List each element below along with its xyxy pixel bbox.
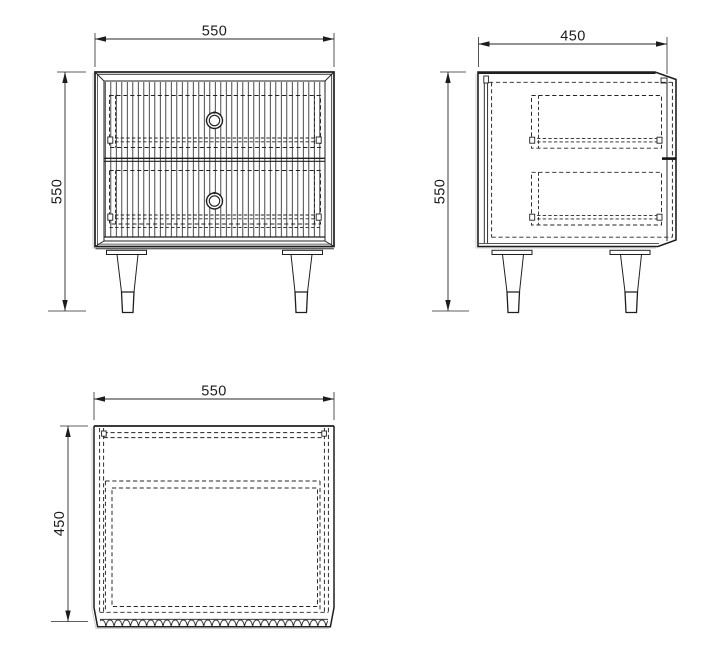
side-shadow-outline <box>476 74 656 249</box>
runner-end-left <box>108 137 113 143</box>
side-depth-label: 450 <box>560 29 585 45</box>
runner-end-right <box>657 137 662 143</box>
front-view: 550 550 <box>48 24 334 313</box>
runner-end-left <box>102 431 107 436</box>
top-depth-label: 450 <box>52 511 68 536</box>
front-width-label: 550 <box>202 24 227 40</box>
runner-end-left <box>530 137 535 143</box>
front-right-leg <box>283 250 323 312</box>
runner-end-right <box>322 431 327 436</box>
side-upper-drawer-hidden-lines <box>530 96 662 149</box>
front-left-leg <box>107 250 147 312</box>
runner-end-left <box>530 214 535 220</box>
top-carcass-hidden-lines <box>100 428 329 612</box>
fluted-front-edge <box>100 620 328 627</box>
front-drawer-fluting <box>104 82 325 237</box>
side-depth-dimension: 450 <box>479 29 668 75</box>
runner-end-right <box>657 214 662 220</box>
top-depth-dimension: 450 <box>51 426 88 622</box>
side-back-panel-cap <box>484 76 489 83</box>
runner-end-right <box>316 137 321 143</box>
side-right-leg <box>610 250 650 312</box>
top-width-label: 550 <box>201 384 226 400</box>
upper-drawer-knob-icon <box>207 111 223 128</box>
side-left-leg <box>492 250 532 312</box>
front-height-dimension: 550 <box>48 72 86 311</box>
top-view: 550 450 <box>51 384 334 629</box>
runner-end-right <box>316 214 321 220</box>
front-height-label: 550 <box>50 179 66 204</box>
top-drawer-hidden-lines <box>100 481 329 612</box>
side-height-dimension: 550 <box>432 72 469 311</box>
side-height-label: 550 <box>433 179 449 204</box>
top-width-dimension: 550 <box>94 384 334 421</box>
front-width-dimension: 550 <box>95 24 334 68</box>
side-lower-drawer-hidden-lines <box>530 172 662 225</box>
side-cabinet-outline <box>478 72 677 247</box>
top-cabinet-outline <box>94 426 334 627</box>
technical-drawing-sheet: 550 550 <box>0 0 722 672</box>
side-carcass-hidden-lines <box>489 82 672 237</box>
side-view: 450 550 <box>432 29 677 313</box>
top-shadow-outline <box>92 428 329 629</box>
lower-drawer-knob-icon <box>207 192 223 209</box>
runner-end-left <box>108 214 113 220</box>
